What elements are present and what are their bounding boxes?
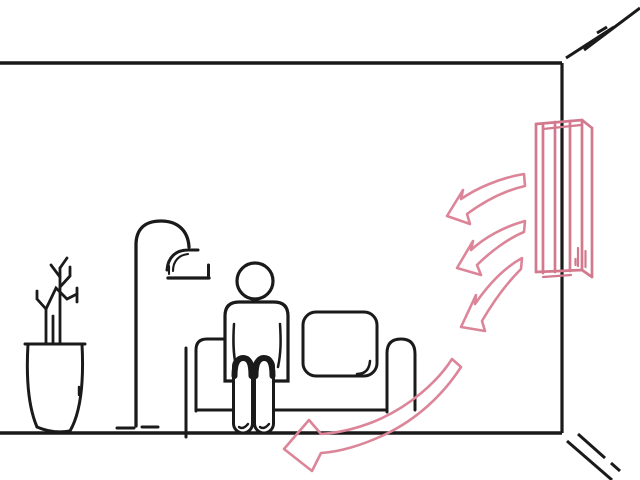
- shade-inner-arc: [173, 254, 188, 271]
- seated-person: [225, 263, 288, 433]
- plant-pot: [25, 344, 85, 432]
- ac-vent-slits: [576, 248, 586, 267]
- airflow-illustration: Line illustration: wall-mounted air cond…: [0, 0, 640, 480]
- airflow-arrows: [284, 174, 525, 471]
- airflow-arrow-lower: [461, 258, 522, 331]
- shade-outer-arc: [167, 250, 198, 270]
- bottom-right-corner-dash: [611, 463, 620, 471]
- sofa-left-armrest: [196, 339, 228, 411]
- plant-branches: [37, 258, 77, 344]
- cushion-corner-fold: [357, 361, 370, 374]
- potted-plant: [25, 258, 85, 432]
- wall-air-conditioner: [536, 120, 592, 277]
- bottom-right-corner-line-1: [567, 441, 612, 480]
- pot-right-side: [70, 344, 83, 431]
- illustration-canvas: Line illustration: wall-mounted air cond…: [0, 0, 640, 480]
- lamp-shade: [167, 250, 209, 278]
- airflow-arrow-top: [447, 174, 525, 224]
- pot-bottom: [37, 427, 70, 432]
- person-head: [237, 263, 273, 299]
- wall-corner-speed-lines: [566, 8, 640, 480]
- top-right-corner-line-2: [584, 8, 640, 50]
- ac-bottom-inner-edge: [543, 275, 571, 277]
- airflow-arrow-middle: [457, 221, 525, 275]
- sofa-back-cushion: [303, 312, 377, 376]
- pot-left-side: [27, 344, 37, 427]
